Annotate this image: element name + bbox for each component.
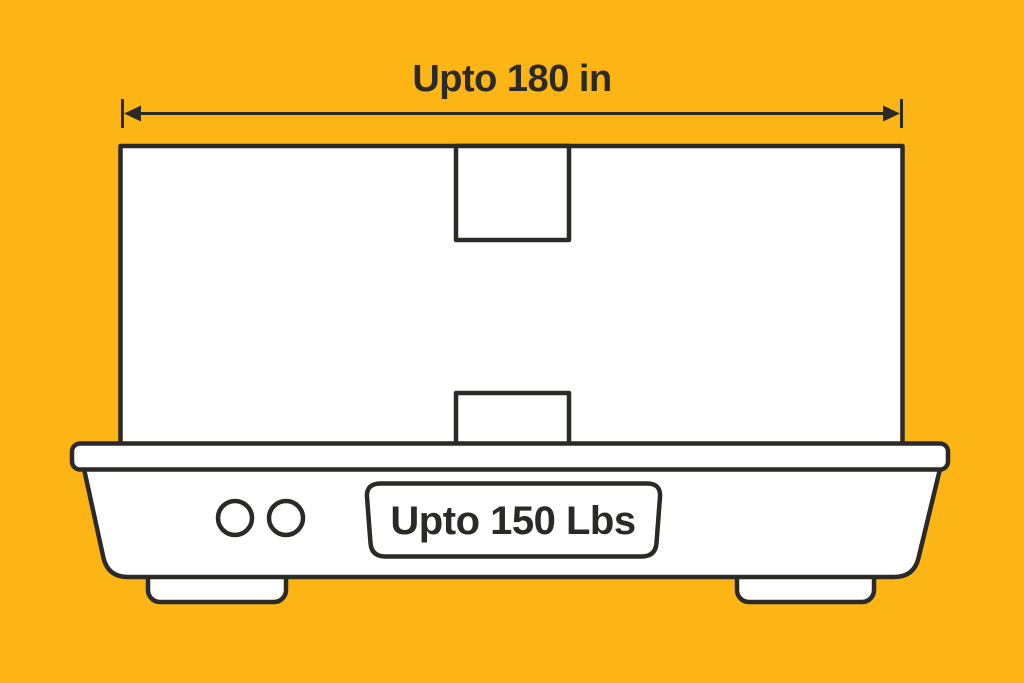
illustration-canvas: Upto 180 in Upto 150 Lbs	[0, 0, 1024, 683]
scale-platform	[72, 444, 948, 470]
package-tape-flap-top	[456, 146, 569, 240]
weight-limit-label: Upto 150 Lbs	[390, 499, 635, 543]
package-scale-illustration: Upto 180 in Upto 150 Lbs	[0, 0, 1024, 683]
scale-button-1	[218, 501, 252, 535]
scale-button-2	[269, 501, 303, 535]
dimension-label: Upto 180 in	[412, 58, 611, 100]
package-tape-flap-bottom	[456, 393, 569, 446]
